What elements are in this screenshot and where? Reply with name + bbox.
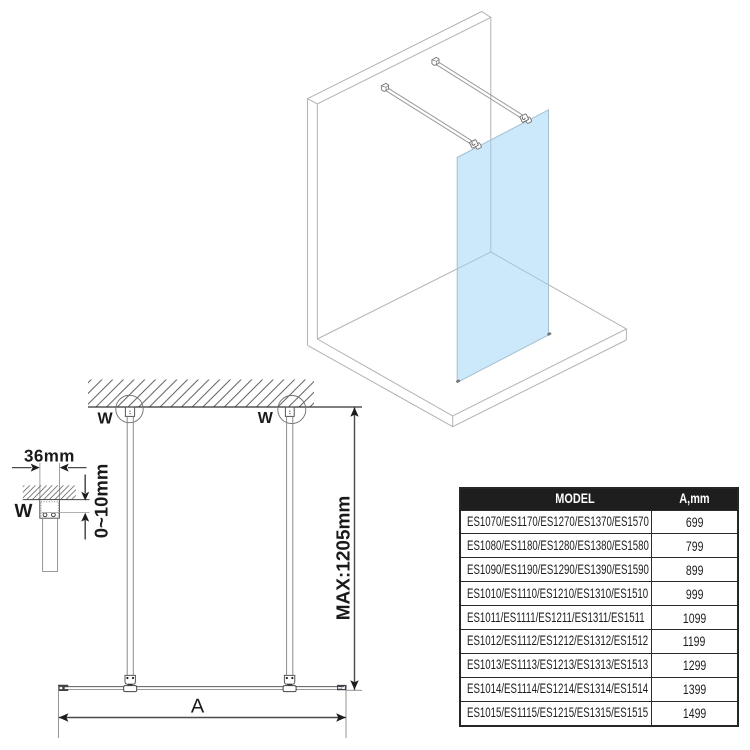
svg-text:W: W bbox=[15, 501, 33, 522]
svg-text:0~10mm: 0~10mm bbox=[91, 464, 112, 539]
svg-text:36mm: 36mm bbox=[24, 447, 75, 466]
svg-text:A: A bbox=[191, 696, 205, 718]
svg-text:W: W bbox=[258, 410, 274, 427]
svg-text:W: W bbox=[98, 410, 114, 427]
svg-text:MAX:1205mm: MAX:1205mm bbox=[334, 496, 355, 621]
